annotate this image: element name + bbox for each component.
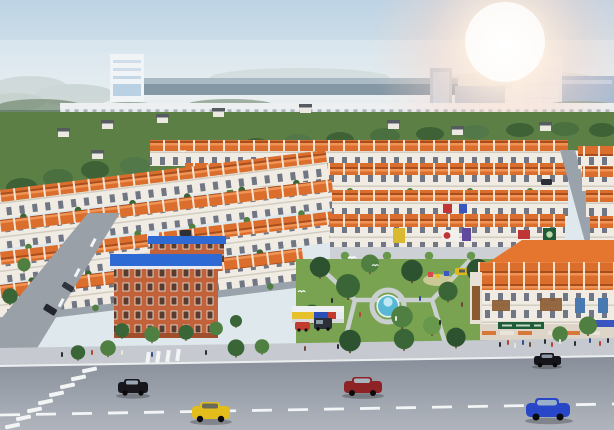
kiosk-fascia-yellow: [292, 312, 314, 319]
shop-signboard: [443, 204, 452, 213]
glass-door: [575, 298, 585, 313]
glass-door: [598, 298, 608, 313]
shopfront-sign-green: [498, 322, 544, 329]
school-fascia: [110, 266, 222, 269]
kiosk-fascia-red: [328, 312, 336, 319]
kiosk-fascia-blue: [314, 312, 328, 319]
shop-signboard-yellow: [393, 228, 405, 243]
school-main-block: [114, 269, 218, 337]
shop-signboard: [518, 230, 530, 239]
corner-wood-screen: [472, 286, 480, 320]
rendering-canvas: [0, 0, 614, 430]
balcony-slats: [540, 298, 562, 311]
corner-eave: [478, 290, 614, 294]
main-road: [0, 353, 614, 430]
shop-signboard: [459, 204, 467, 213]
kiosk-canopy: [292, 306, 344, 312]
kiosk-fascia-white: [336, 312, 344, 319]
balcony-slats: [492, 300, 510, 311]
shop-signboard-purple: [462, 228, 471, 241]
tiny-dark-car: [541, 179, 552, 185]
school-base: [114, 333, 218, 338]
sun-flare-core: [465, 2, 545, 82]
dark-van: [314, 318, 332, 331]
shop-signboard-red-logo: [442, 230, 459, 241]
corner-roof-main: [478, 262, 614, 292]
tiny-dark-car: [180, 230, 191, 236]
school-main-roof: [110, 254, 222, 266]
school-rear-roof: [148, 236, 226, 244]
shop-signboard-green-logo: [543, 228, 556, 241]
